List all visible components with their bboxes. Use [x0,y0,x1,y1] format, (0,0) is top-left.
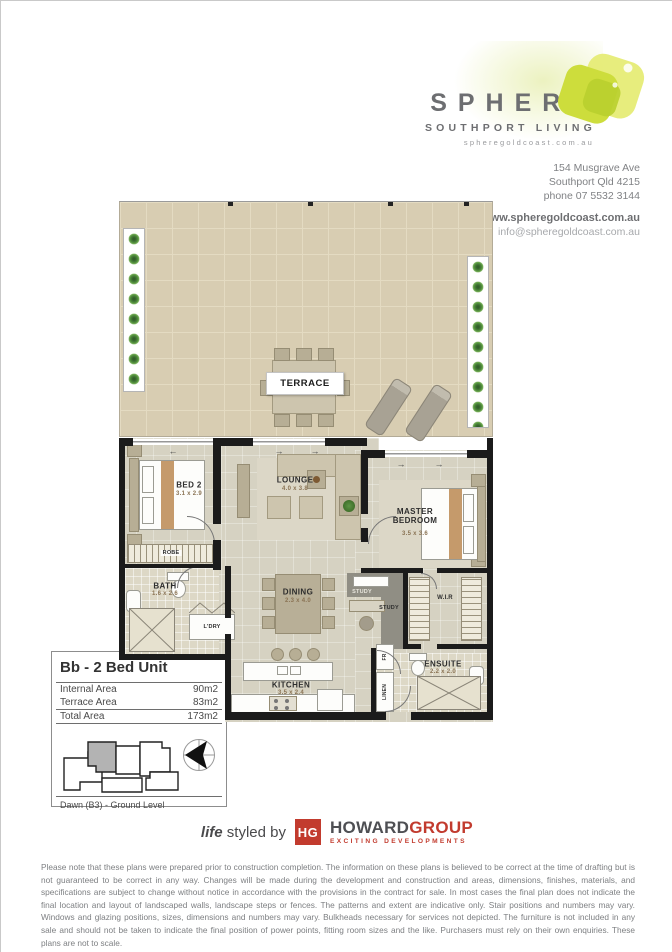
phone-line: phone 07 5532 3144 [482,189,640,203]
chair-icon [322,616,335,629]
burner-icon [274,699,278,703]
armchair-icon [299,496,323,519]
terrace-area: TERRACE [119,201,493,437]
chair-icon [318,348,334,361]
howard-group-monogram-icon: HG [295,819,321,845]
room-dims-dining: 2.3 x 4.0 [285,598,311,604]
pillow-icon [142,497,154,524]
bed-runner-icon [161,461,174,529]
email-line: info@spheregoldcoast.com.au [482,225,640,239]
chair-icon [274,348,290,361]
website-line: www.spheregoldcoast.com.au [482,211,640,225]
wall [403,644,421,649]
bed-headboard-icon [129,458,139,532]
burner-icon [285,699,289,703]
slide-arrow-icon: → [435,459,444,469]
chair-icon [322,597,335,610]
room-label-bath: BATH [153,582,176,591]
fire-icon [313,476,320,483]
sink-icon [290,666,301,675]
level-caption: Dawn (B3) - Ground Level [52,797,226,813]
desk-chair-icon [359,616,374,631]
sphere-logo-icon [551,39,651,141]
room-dims-lounge: 4.0 x 3.8 [282,486,308,492]
pendant-light-icon [271,648,284,661]
wall [119,654,231,660]
room-label-study-nook: STUDY [352,589,372,595]
address-block: 154 Musgrave Ave Southport Qld 4215 phon… [482,161,640,239]
pillow-icon [463,494,474,522]
area-label: Internal Area [60,684,117,695]
floor-plan: TERRACE [119,198,493,726]
slide-arrow-icon: ← [169,446,178,456]
planter-box-icon [467,256,489,428]
chair-icon [296,348,312,361]
wall [487,450,493,720]
tv-unit-icon [237,464,250,518]
wall [213,446,221,524]
room-label-bed2: BED 2 [176,481,202,490]
room-label-study: STUDY [379,605,399,611]
room-label-lounge: LOUNGE [277,476,314,485]
room-label-dining: DINING [283,588,313,597]
area-label: Terrace Area [60,697,117,708]
wall [119,564,217,568]
wall [225,658,231,718]
wall [325,438,367,446]
group-word: GROUP [409,818,473,837]
window [385,451,467,457]
wall [361,458,368,514]
room-dims-bath: 1.6 x 2.6 [152,591,178,597]
shower-icon [417,676,481,710]
howard-group-wordmark: HOWARDGROUP EXCITING DEVELOPMENTS [330,819,473,846]
burner-icon [285,706,289,710]
wall [361,450,385,458]
appliance-icon [317,689,343,711]
armchair-icon [267,496,291,519]
room-label-laundry: L'DRY [203,624,220,630]
dimension-tick [308,202,313,206]
chair-icon [262,597,275,610]
chair-icon [322,578,335,591]
wall [403,573,408,649]
styled-by-word: styled by [227,824,286,841]
pendant-light-icon [289,648,302,661]
pillow-icon [142,466,154,493]
chair-icon [318,414,334,427]
area-row: Terrace Area 83m2 [52,696,226,709]
chair-icon [262,616,275,629]
pendant-light-icon [307,648,320,661]
area-value: 83m2 [193,697,218,708]
key-plan [52,724,226,796]
area-row: Total Area 173m2 [52,710,226,723]
north-compass-icon [180,736,218,774]
address-line1: 154 Musgrave Ave [482,161,640,175]
room-label-terrace: TERRACE [266,372,344,395]
toilet-icon [411,660,425,676]
bed-runner-icon [449,489,462,559]
howard-word: HOWARD [330,818,409,837]
desk-icon [353,576,389,587]
floorplan-brochure-page: SPHERE SOUTHPORT LIVING spheregoldcoast.… [0,0,672,952]
window [133,439,213,445]
wall [119,438,133,446]
plant-icon [343,500,355,512]
planter-box-icon [123,228,145,392]
room-dims-master: 3.5 x 3.6 [402,531,428,537]
dining-table-icon [275,574,321,634]
wall [361,528,368,542]
room-label-robe: ROBE [161,550,182,556]
disclaimer-text: Please note that these plans were prepar… [41,861,635,949]
wall [225,566,231,618]
slide-arrow-icon: → [397,459,406,469]
window [253,439,325,445]
dimension-tick [388,202,393,206]
area-label: Total Area [60,711,104,722]
wall [467,450,493,458]
chair-icon [274,414,290,427]
wall [213,438,253,446]
building-key-plan-icon [56,728,184,794]
room-label-fridge: FR [382,653,388,660]
chair-icon [296,414,312,427]
room-label-kitchen: KITCHEN [272,681,310,690]
room-label-master: MASTER BEDROOM [387,507,443,525]
unit-info-box: Bb - 2 Bed Unit Internal Area 90m2 Terra… [51,651,227,807]
wall [361,568,423,573]
room-label-wir: W.I.R [437,595,453,601]
dimension-tick [228,202,233,206]
life-word: life [201,824,223,841]
tagline-text: life styled by [201,824,286,841]
wall [119,438,125,660]
room-label-ensuite: ENSUITE [424,660,461,669]
wall [411,712,493,720]
exciting-developments-text: EXCITING DEVELOPMENTS [330,839,473,846]
kitchen-island-icon [243,662,333,681]
room-dims-kitchen: 3.5 x 2.4 [278,690,304,696]
wardrobe-rail-icon [461,577,482,641]
pillow-icon [463,526,474,554]
wall [437,568,493,573]
room-dims-bed2: 3.1 x 2.9 [176,491,202,497]
wall [371,648,376,714]
sink-icon [277,666,288,675]
dimension-tick [464,202,469,206]
sun-lounger-icon [404,383,453,443]
developer-footer: life styled by HG HOWARDGROUP EXCITING D… [1,819,672,846]
wall [437,644,493,649]
address-line2: Southport Qld 4215 [482,175,640,189]
area-value: 173m2 [187,711,218,722]
area-row: Internal Area 90m2 [52,683,226,696]
slide-arrow-icon: → [311,446,320,456]
bed-headboard-icon [477,486,486,562]
burner-icon [274,706,278,710]
slide-arrow-icon: → [275,446,284,456]
wall [225,634,231,660]
shower-icon [129,608,175,652]
wall [225,712,386,720]
room-dims-ensuite: 2.2 x 2.0 [430,669,456,675]
room-label-linen: LINEN [382,684,388,700]
area-value: 90m2 [193,684,218,695]
chair-icon [262,578,275,591]
